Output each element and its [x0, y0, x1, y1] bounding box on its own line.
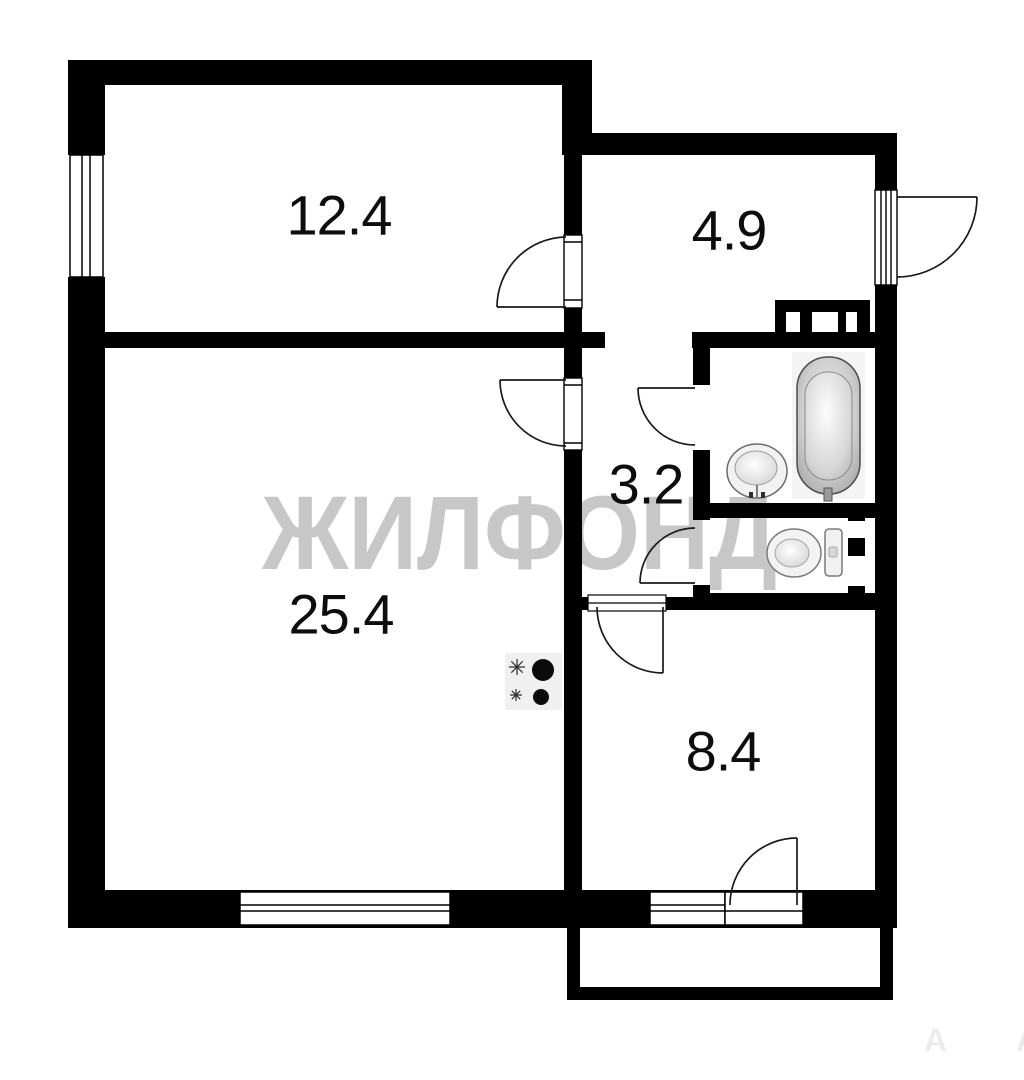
door-panel-living	[564, 378, 582, 450]
door-panel-room12	[564, 235, 582, 308]
room-area-label-8-4: 8.4	[686, 719, 761, 784]
room-area-label-4-9: 4.9	[692, 198, 767, 263]
stove-burners-icon	[505, 653, 562, 710]
floor-plan-drawing	[0, 0, 1024, 1080]
window-bottom-kitchen	[650, 892, 725, 925]
door-bath-arc	[638, 388, 695, 445]
door-kitchen-arc	[597, 607, 663, 673]
room-area-label-12-4: 12.4	[287, 183, 392, 248]
window-left	[70, 155, 103, 277]
door-toilet-arc	[640, 528, 695, 583]
door-entry-arc	[897, 197, 977, 277]
walls	[68, 60, 897, 1000]
door-living-arc	[500, 380, 566, 446]
window-bottom-living	[240, 892, 450, 925]
room-area-label-25-4: 25.4	[289, 582, 394, 647]
room-area-label-3-2: 3.2	[609, 452, 684, 517]
kitchen-door-threshold	[588, 595, 666, 611]
sink-icon	[727, 444, 787, 498]
toilet-icon	[767, 529, 842, 577]
bathtub-icon	[792, 352, 865, 501]
balcony-door-threshold	[725, 892, 803, 925]
entry-door-frame	[875, 190, 897, 285]
door-room12-arc	[497, 237, 566, 307]
floor-plan: ЖИЛФОНД А А	[0, 0, 1024, 1080]
